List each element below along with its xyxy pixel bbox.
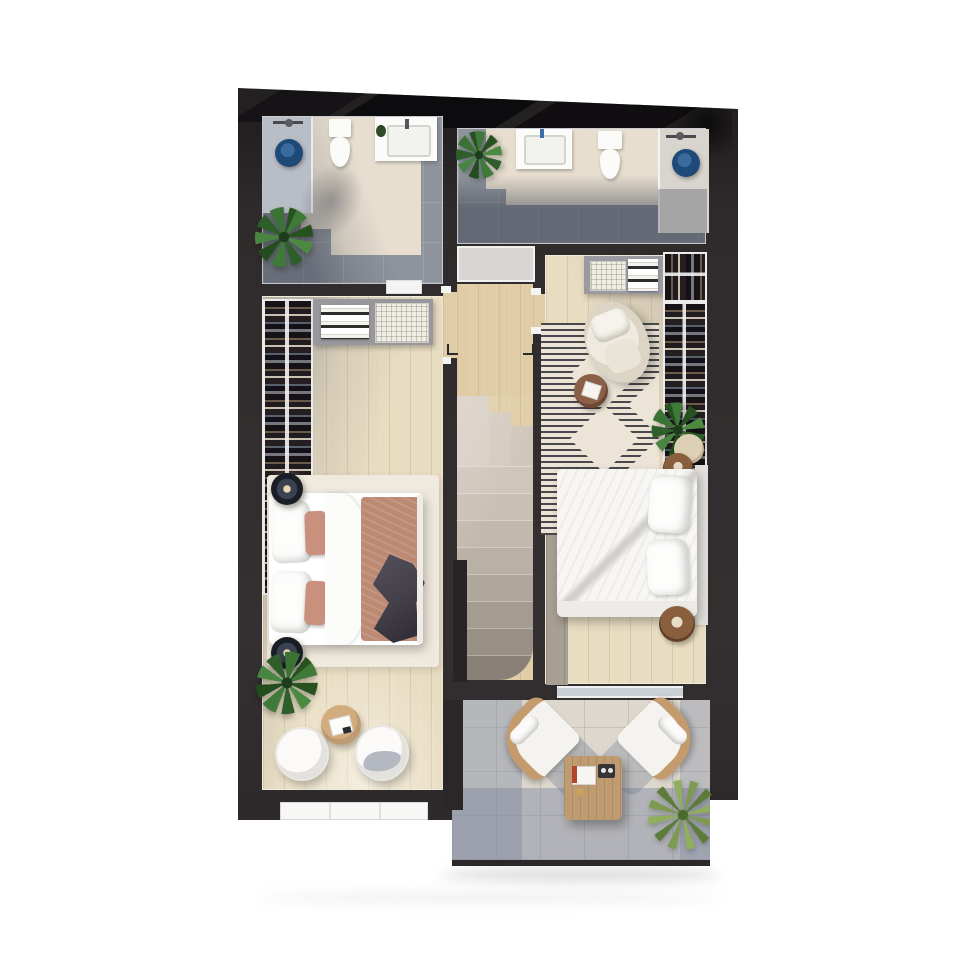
vanity-plant-pot (376, 125, 386, 137)
round-table (321, 705, 361, 745)
book (581, 381, 602, 401)
bathroom-right-floor-beige (486, 129, 658, 189)
lounge-chair (275, 727, 329, 781)
bathroom-right-floor-beige (506, 189, 658, 205)
sink-basin (387, 125, 431, 157)
laundry-basket (375, 303, 429, 343)
bed-footboard (417, 495, 423, 643)
drop-shadow (260, 893, 720, 903)
shower-alcove (658, 129, 709, 233)
shower-stool (275, 139, 303, 167)
scene-canvas (0, 0, 960, 960)
stair-tread-lines (457, 466, 533, 680)
drop-shadow (440, 868, 720, 882)
backrest-pillow (507, 712, 542, 747)
rug-diamond (570, 405, 638, 473)
chair-throw-fabric (362, 748, 402, 773)
serving-tray (598, 764, 615, 778)
phone (342, 726, 351, 734)
chair-seat (601, 336, 644, 377)
staircase (457, 396, 533, 680)
shower-head-icon (676, 132, 684, 140)
coffee-table (564, 756, 622, 820)
door-swing-mark (523, 344, 534, 355)
bathroom-left (262, 116, 443, 284)
toilet-tank (329, 119, 351, 137)
book-spine-accent (572, 766, 577, 783)
winder-step (457, 396, 489, 466)
open-wardrobe-top (663, 252, 707, 302)
door-jamb (441, 286, 451, 293)
shower-head-icon (285, 119, 293, 127)
faucet-icon (540, 129, 544, 138)
small-item (576, 788, 584, 796)
bedroom-left (262, 296, 443, 790)
cup (601, 768, 606, 773)
backrest-pillow (655, 712, 690, 747)
double-bed (269, 493, 423, 645)
door-jamb (531, 288, 541, 295)
hall-floor (457, 284, 533, 396)
folded-clothes-stack (321, 305, 369, 339)
side-table (574, 374, 608, 408)
lounge-chair (355, 725, 409, 781)
bed-pillow (646, 538, 691, 596)
stair-steps (457, 466, 533, 680)
window-mullion (329, 803, 331, 819)
faucet-icon (405, 119, 409, 129)
terrace (452, 700, 710, 860)
terrace-sliding-door (557, 686, 683, 698)
shower-tray (457, 246, 535, 282)
window-sill (280, 802, 428, 820)
round-nightstand (659, 606, 695, 642)
storage-box (590, 261, 626, 291)
background-carve (238, 820, 452, 870)
winder-step (511, 426, 533, 466)
bed-pillow (647, 474, 693, 535)
toilet-tank (598, 131, 622, 149)
background-carve (710, 800, 740, 870)
wardrobe-shelf (584, 256, 663, 294)
bedroom-right (545, 255, 706, 684)
stair-parapet-wall (453, 560, 467, 682)
double-bed (557, 465, 708, 625)
window-mullion (379, 803, 381, 819)
door-bathroom-left (386, 280, 422, 294)
shower-stool (672, 149, 700, 177)
door-jamb (531, 327, 541, 334)
bathroom-left-floor-beige (331, 229, 421, 255)
sink-basin (524, 135, 566, 165)
nightstand-lamp (271, 473, 303, 505)
terrace-side-wall (443, 700, 463, 810)
winder-step (489, 412, 511, 466)
bathroom-right (457, 128, 706, 244)
rattan-chair (615, 693, 707, 785)
cup (608, 768, 613, 773)
dresser (313, 299, 433, 345)
folded-clothes-stack (628, 259, 658, 291)
door-swing-mark (447, 344, 458, 355)
